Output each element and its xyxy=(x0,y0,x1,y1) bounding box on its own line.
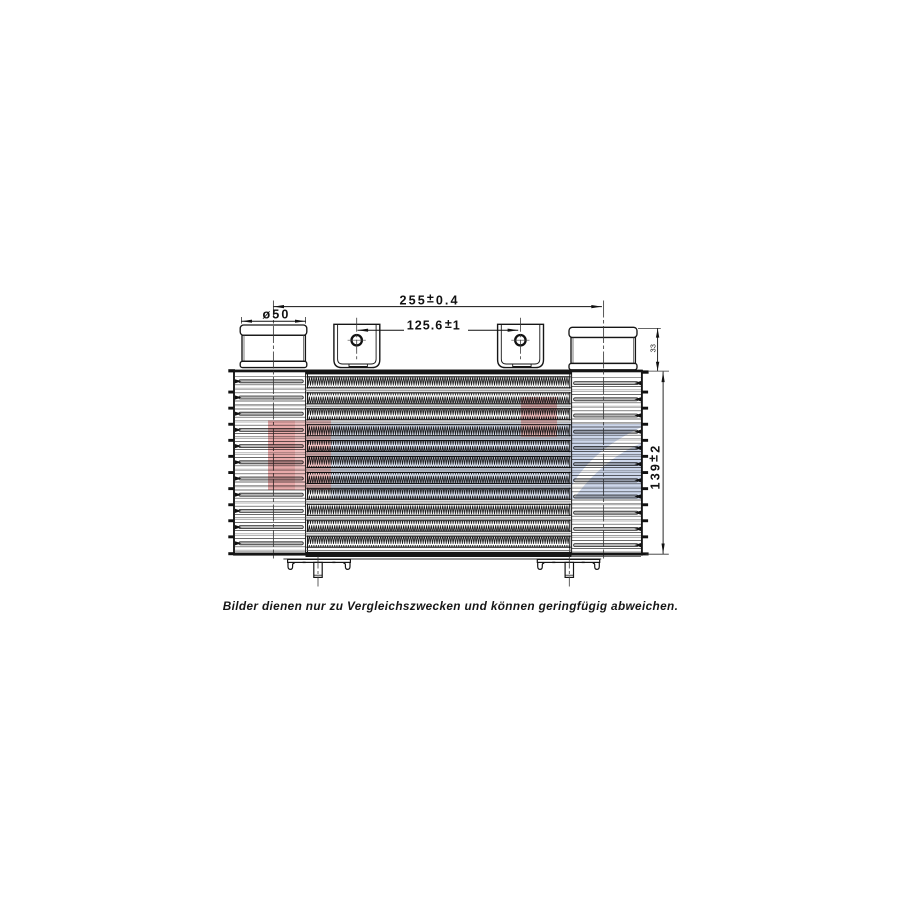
svg-text:255±0.4: 255±0.4 xyxy=(400,292,460,308)
svg-text:Bilder dienen nur zu Vergleich: Bilder dienen nur zu Vergleichszwecken u… xyxy=(223,599,678,613)
svg-text:ø50: ø50 xyxy=(263,308,291,322)
svg-text:125.6±1: 125.6±1 xyxy=(407,317,461,333)
svg-text:33: 33 xyxy=(649,344,658,352)
svg-text:139±2: 139±2 xyxy=(647,444,663,490)
